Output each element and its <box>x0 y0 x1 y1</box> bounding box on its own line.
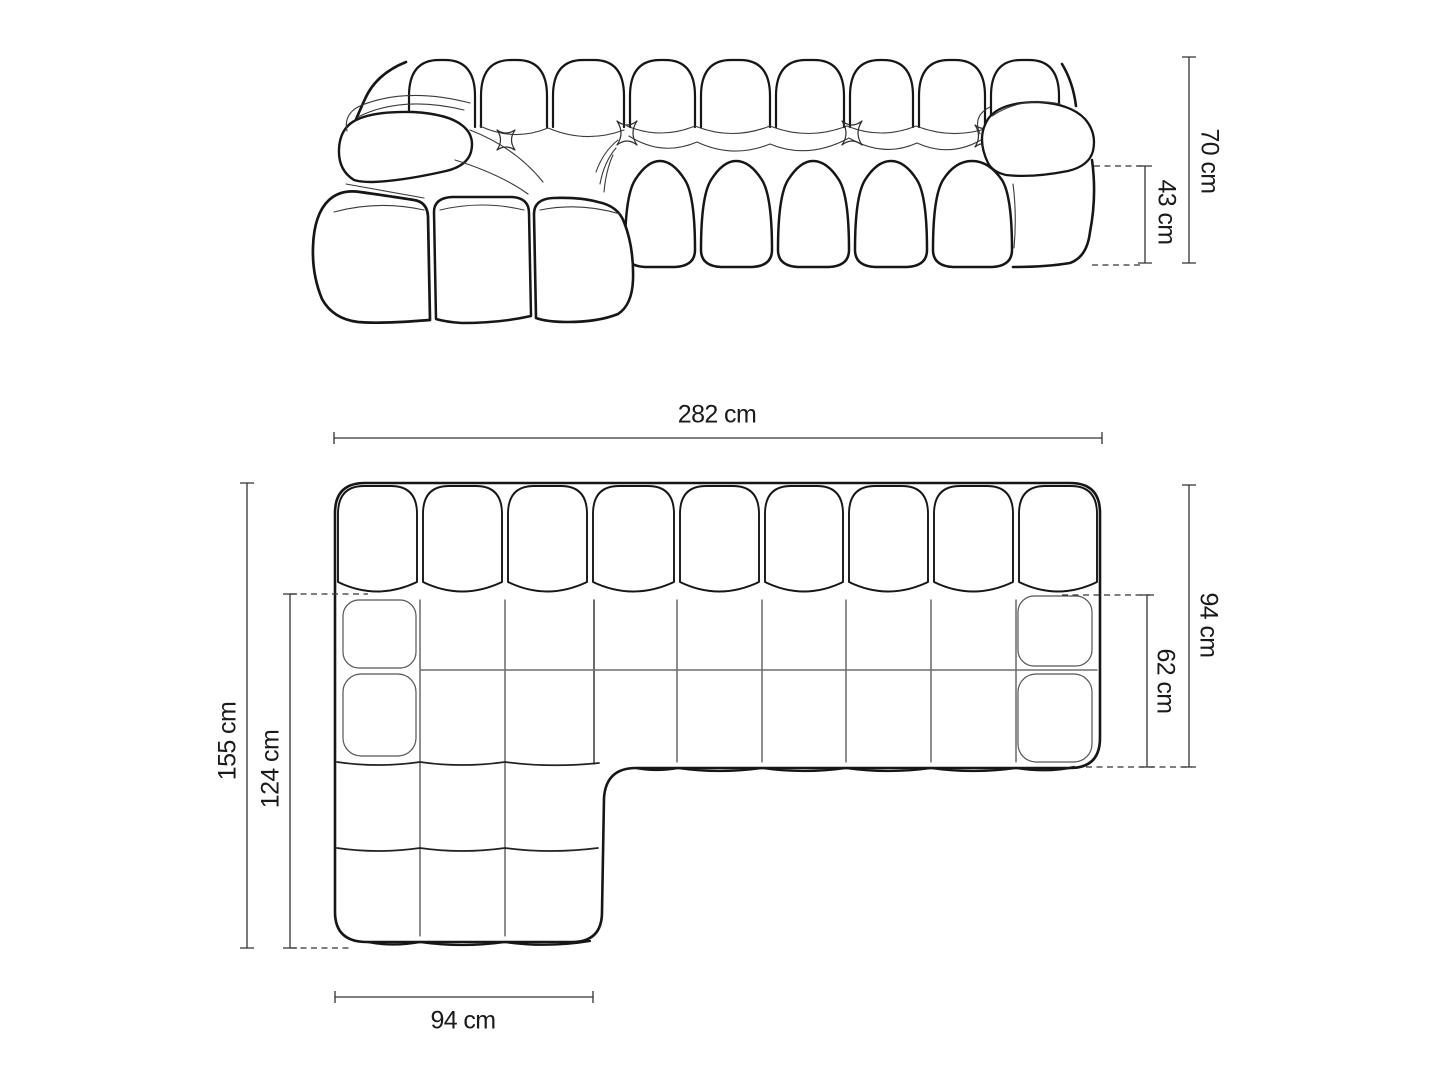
dim-label-seat-depth: 62 cm <box>1153 648 1178 713</box>
dim-label-total-height: 70 cm <box>1197 128 1222 193</box>
chaise-cushion-right <box>534 198 633 322</box>
dim-line-chaise-width <box>335 991 593 1003</box>
chaise-cushion-left <box>313 191 430 322</box>
right-armrest-seam <box>1013 184 1015 248</box>
top-plan-drawing <box>335 483 1100 945</box>
front-elevation-drawing <box>313 60 1094 323</box>
dim-line-total-height <box>1182 57 1196 263</box>
chaise-cushion-middle <box>434 197 531 323</box>
right-armrest-pillow <box>982 102 1094 176</box>
dim-line-seat-height <box>1092 166 1152 265</box>
dim-label-total-width: 282 cm <box>678 403 756 428</box>
diagram-line-art <box>0 0 1454 1090</box>
dim-line-total-width <box>334 432 1102 444</box>
plan-back-cushions <box>338 486 1097 592</box>
dim-label-chaise-width: 94 cm <box>430 1009 495 1034</box>
dim-label-total-depth: 94 cm <box>1196 592 1221 657</box>
dim-label-seat-height: 43 cm <box>1154 179 1179 244</box>
sofa-dimension-diagram: 70 cm 43 cm 282 cm 155 cm 124 cm 94 cm 6… <box>0 0 1454 1090</box>
dim-label-total-length: 155 cm <box>216 702 241 780</box>
dim-line-total-length <box>240 483 254 948</box>
dim-label-chaise-length: 124 cm <box>259 730 284 808</box>
left-armrest-pillow <box>339 112 472 182</box>
elevation-back-cushions <box>409 60 1059 127</box>
right-armrest-top-silhouette <box>1062 64 1076 106</box>
elevation-seat-cushions <box>625 161 1012 267</box>
